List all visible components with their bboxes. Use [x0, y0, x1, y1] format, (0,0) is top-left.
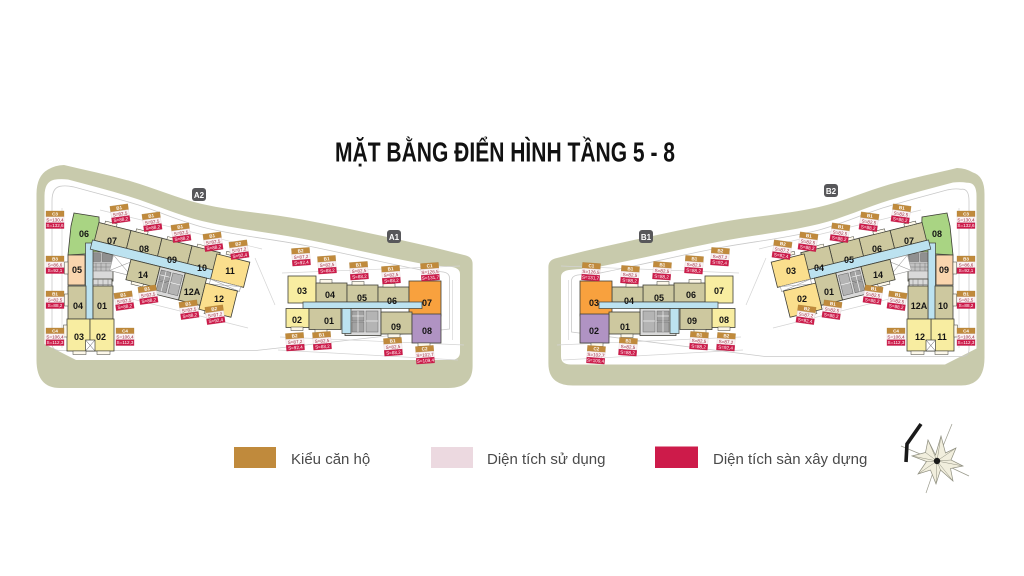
svg-text:05: 05 [844, 255, 854, 265]
svg-text:C4: C4 [122, 328, 128, 333]
svg-text:02: 02 [797, 294, 807, 304]
svg-text:09: 09 [939, 265, 949, 275]
svg-text:10: 10 [197, 263, 207, 273]
svg-text:02: 02 [292, 315, 302, 325]
svg-text:07: 07 [904, 236, 914, 246]
svg-text:04: 04 [624, 296, 634, 306]
svg-text:S=88,2: S=88,2 [48, 303, 63, 308]
svg-text:S=88,2: S=88,2 [686, 268, 701, 274]
svg-text:12: 12 [214, 294, 224, 304]
svg-text:B1: B1 [691, 256, 698, 261]
svg-text:06: 06 [79, 229, 89, 239]
svg-text:B1: B1 [185, 301, 192, 307]
svg-text:06: 06 [387, 296, 397, 306]
svg-text:S=106,4: S=106,4 [46, 335, 64, 340]
svg-text:08: 08 [932, 229, 942, 239]
svg-text:B2: B2 [291, 333, 298, 338]
svg-text:B1: B1 [899, 205, 906, 211]
svg-text:02: 02 [96, 332, 106, 342]
svg-text:S=106,4: S=106,4 [116, 335, 134, 340]
svg-text:09: 09 [687, 316, 697, 326]
svg-text:05: 05 [654, 293, 664, 303]
svg-text:06: 06 [872, 244, 882, 254]
svg-text:Diện tích sàn xây dựng: Diện tích sàn xây dựng [713, 451, 867, 468]
svg-text:B2: B2 [826, 187, 837, 196]
svg-text:12A: 12A [184, 287, 201, 297]
svg-text:C4: C4 [893, 328, 899, 333]
svg-text:S=88,2: S=88,2 [691, 344, 706, 350]
svg-text:B1: B1 [355, 262, 362, 267]
svg-text:14: 14 [138, 270, 148, 280]
svg-text:S=106,4: S=106,4 [887, 335, 905, 340]
svg-text:S=130,4: S=130,4 [46, 218, 64, 223]
svg-text:S=88,2: S=88,2 [654, 274, 669, 280]
svg-text:B2: B2 [780, 241, 787, 247]
svg-text:B1: B1 [323, 256, 330, 261]
svg-text:S=112,3: S=112,3 [117, 340, 134, 345]
svg-text:B2: B2 [717, 248, 724, 253]
svg-text:B1: B1 [659, 262, 666, 267]
svg-text:S=92,4: S=92,4 [718, 345, 733, 351]
svg-text:B1: B1 [318, 332, 325, 337]
svg-text:B1: B1 [387, 266, 394, 271]
svg-text:08: 08 [422, 326, 432, 336]
svg-text:C2: C2 [593, 346, 600, 351]
svg-text:B1: B1 [963, 291, 969, 296]
svg-text:01: 01 [620, 322, 630, 332]
svg-text:S=88,2: S=88,2 [622, 278, 637, 284]
svg-text:A1: A1 [389, 233, 400, 242]
svg-text:C1: C1 [426, 263, 433, 268]
svg-text:B1: B1 [641, 233, 652, 242]
svg-text:S=112,3: S=112,3 [958, 340, 975, 345]
svg-text:MẶT BẰNG ĐIỂN HÌNH TẦNG 5 - 8: MẶT BẰNG ĐIỂN HÌNH TẦNG 5 - 8 [335, 137, 675, 168]
svg-text:B2: B2 [211, 306, 218, 312]
svg-text:06: 06 [686, 290, 696, 300]
svg-text:08: 08 [719, 315, 729, 325]
svg-text:10: 10 [938, 301, 948, 311]
svg-text:01: 01 [324, 316, 334, 326]
svg-text:C2: C2 [421, 346, 428, 351]
svg-text:B2: B2 [235, 241, 242, 247]
svg-text:S=106,4: S=106,4 [957, 335, 975, 340]
svg-text:01: 01 [97, 301, 107, 311]
svg-text:B1: B1 [177, 224, 184, 230]
svg-text:B1: B1 [838, 224, 845, 230]
svg-text:09: 09 [391, 322, 401, 332]
svg-text:S=88,2: S=88,2 [320, 268, 335, 274]
svg-text:S=130,4: S=130,4 [957, 218, 975, 223]
svg-text:S=132,6: S=132,6 [957, 223, 975, 228]
svg-text:A2: A2 [194, 191, 205, 200]
svg-text:S=86,6: S=86,6 [48, 263, 63, 268]
svg-text:S=92,4: S=92,4 [294, 260, 309, 266]
svg-text:01: 01 [824, 287, 834, 297]
svg-text:B1: B1 [625, 338, 632, 343]
svg-text:S=88,2: S=88,2 [386, 350, 401, 356]
svg-text:S=88,2: S=88,2 [352, 274, 367, 280]
svg-text:B1: B1 [867, 213, 874, 219]
svg-text:B1: B1 [696, 332, 703, 337]
svg-text:09: 09 [167, 255, 177, 265]
svg-text:B2: B2 [804, 306, 811, 312]
svg-text:14: 14 [873, 270, 883, 280]
svg-text:S=132,6: S=132,6 [46, 223, 64, 228]
svg-text:03: 03 [786, 266, 796, 276]
svg-text:07: 07 [714, 286, 724, 296]
svg-text:07: 07 [422, 298, 432, 308]
svg-text:04: 04 [73, 301, 83, 311]
svg-text:S=92,1: S=92,1 [959, 268, 974, 273]
svg-text:05: 05 [72, 265, 82, 275]
svg-text:12A: 12A [911, 301, 928, 311]
svg-text:B1: B1 [830, 301, 837, 307]
svg-text:C4: C4 [963, 328, 969, 333]
svg-text:B1: B1 [116, 205, 123, 211]
svg-text:B3: B3 [52, 256, 58, 261]
svg-text:S=92,4: S=92,4 [712, 260, 727, 266]
svg-text:B2: B2 [297, 248, 304, 253]
svg-text:B3: B3 [963, 256, 969, 261]
svg-text:B1: B1 [52, 291, 58, 296]
svg-text:11: 11 [937, 332, 947, 342]
svg-text:S=82,5: S=82,5 [959, 298, 974, 303]
svg-text:C1: C1 [588, 263, 595, 268]
svg-text:S=88,2: S=88,2 [620, 350, 635, 356]
svg-text:03: 03 [74, 332, 84, 342]
svg-text:S=88,2: S=88,2 [959, 303, 974, 308]
svg-text:S=88,2: S=88,2 [315, 344, 330, 350]
svg-text:05: 05 [357, 293, 367, 303]
svg-text:B1: B1 [895, 292, 902, 298]
svg-text:04: 04 [814, 263, 824, 273]
svg-text:S=112,3: S=112,3 [47, 340, 64, 345]
svg-text:B1: B1 [144, 286, 151, 292]
svg-text:B1: B1 [806, 233, 813, 239]
svg-text:B1: B1 [627, 266, 634, 271]
svg-text:S=92,1: S=92,1 [48, 268, 63, 273]
svg-text:S=82,5: S=82,5 [48, 298, 63, 303]
svg-text:S=88,2: S=88,2 [384, 278, 399, 284]
svg-text:03: 03 [589, 298, 599, 308]
svg-text:04: 04 [325, 290, 335, 300]
svg-text:S=112,3: S=112,3 [888, 340, 905, 345]
svg-text:S=92,4: S=92,4 [288, 345, 303, 351]
svg-text:B1: B1 [871, 286, 878, 292]
svg-text:07: 07 [107, 236, 117, 246]
svg-text:C3: C3 [963, 211, 969, 216]
svg-text:11: 11 [225, 266, 235, 276]
svg-text:C4: C4 [52, 328, 58, 333]
svg-text:B1: B1 [120, 292, 127, 298]
svg-text:C3: C3 [52, 211, 58, 216]
svg-text:B1: B1 [389, 338, 396, 343]
svg-text:B1: B1 [148, 213, 155, 219]
svg-text:12: 12 [915, 332, 925, 342]
svg-text:Diện tích sử dụng: Diện tích sử dụng [487, 451, 605, 468]
svg-text:B1: B1 [209, 233, 216, 239]
svg-text:S=86,6: S=86,6 [959, 263, 974, 268]
svg-text:08: 08 [139, 244, 149, 254]
svg-text:B2: B2 [723, 333, 730, 338]
svg-text:02: 02 [589, 326, 599, 336]
svg-text:03: 03 [297, 286, 307, 296]
svg-text:Kiểu căn hộ: Kiểu căn hộ [291, 451, 370, 468]
